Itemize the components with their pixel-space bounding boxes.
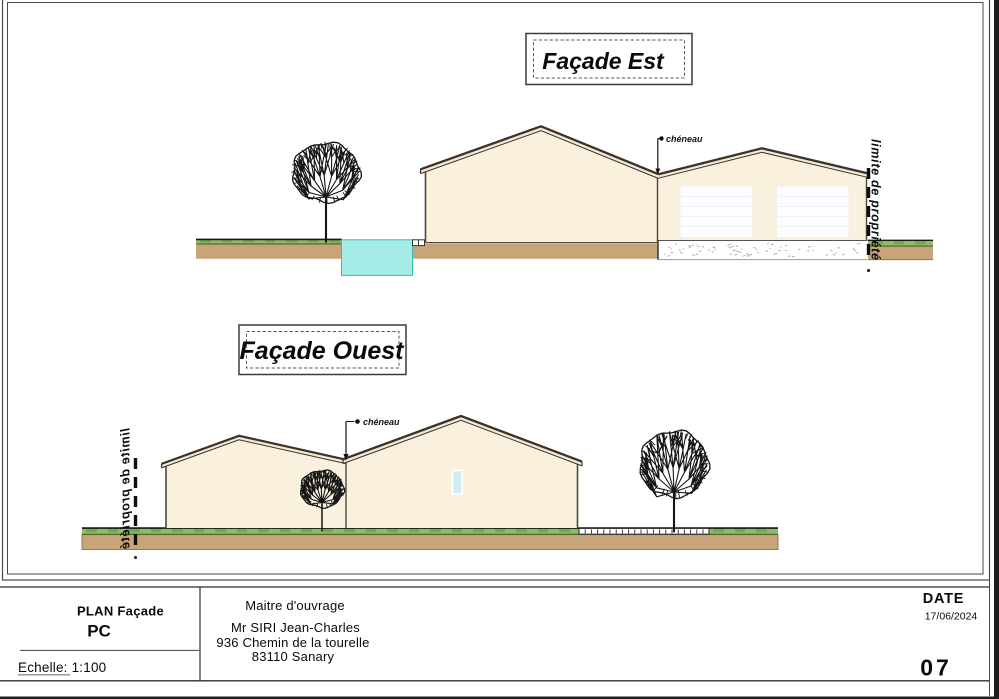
svg-text:07: 07 <box>920 655 952 681</box>
svg-text:936 Chemin de la tourelle: 936 Chemin de la tourelle <box>216 635 369 650</box>
svg-text:limite de propriété: limite de propriété <box>869 139 883 261</box>
svg-text:Façade Est: Façade Est <box>542 48 665 74</box>
svg-text:Mr SIRI Jean-Charles: Mr SIRI Jean-Charles <box>231 620 360 635</box>
svg-text:limite de propriété: limite de propriété <box>119 428 133 550</box>
svg-text:PLAN Façade: PLAN Façade <box>77 604 164 619</box>
svg-text:17/06/2024: 17/06/2024 <box>925 611 978 623</box>
svg-text:PC: PC <box>87 622 111 641</box>
svg-text:83110 Sanary: 83110 Sanary <box>252 649 335 664</box>
svg-text:chéneau: chéneau <box>363 417 400 427</box>
svg-text:Echelle: 1:100: Echelle: 1:100 <box>18 660 106 675</box>
svg-text:Façade Ouest: Façade Ouest <box>240 337 406 365</box>
svg-text:chéneau: chéneau <box>666 134 703 144</box>
svg-text:DATE: DATE <box>923 591 965 607</box>
svg-text:Maitre d'ouvrage: Maitre d'ouvrage <box>245 598 345 613</box>
